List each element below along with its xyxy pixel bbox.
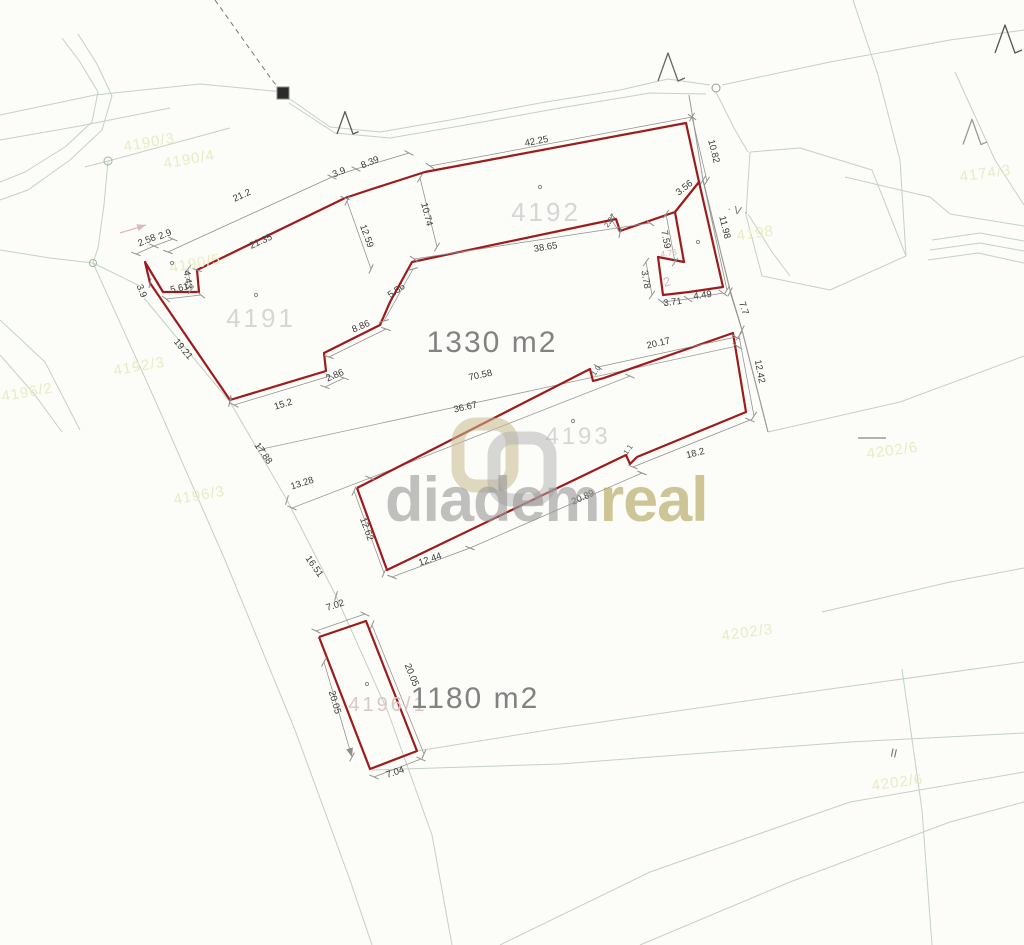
- parcel-number-4192: 4192: [511, 197, 581, 227]
- parcel-boundary-underlay: [716, 92, 748, 152]
- dimension-tick: [381, 327, 390, 330]
- dimension-tick: [286, 495, 289, 505]
- dimension-tick: [704, 177, 709, 185]
- parcel-center-dot: [254, 293, 257, 296]
- parcel-boundary-underlay: [932, 233, 1024, 241]
- double-bar-symbol: II: [889, 746, 898, 761]
- parcel-number-4193: 4193: [545, 423, 610, 450]
- dimension-line: [316, 614, 365, 631]
- watermark-word-real: real: [600, 465, 708, 535]
- boundary-line: [703, 180, 768, 432]
- tree-symbol: [337, 112, 359, 134]
- parcel-boundary-underlay: [930, 243, 1024, 251]
- underlay-parcel-label: 4202/3: [720, 621, 774, 645]
- underlay-parcel-label: 4174/3: [958, 162, 1012, 186]
- dimension-tick: [230, 403, 239, 408]
- dimension-label-faint: 4.76: [660, 247, 678, 259]
- parcel-boundary-underlay: [0, 84, 283, 115]
- dimension-label: 8.39: [359, 154, 380, 171]
- dimension-label: 36.67: [453, 400, 479, 416]
- dimension-label: 21.2: [231, 187, 252, 205]
- parcel-boundary-underlay: [822, 568, 1024, 612]
- tree-symbol: [995, 25, 1022, 53]
- parcel-center-dot: [571, 419, 574, 422]
- orchard-symbol: · V ·: [726, 203, 749, 219]
- dimension-label: 70.58: [468, 368, 494, 384]
- dimension-label: 19.21: [171, 337, 195, 362]
- underlay-parcel-label: 4190/4: [162, 147, 216, 173]
- parcel-boundary-underlay: [0, 250, 93, 263]
- dimension-line: [692, 117, 707, 181]
- dimension-label: 12.42: [752, 359, 767, 384]
- dimension-label: 7.59: [658, 229, 672, 249]
- underlay-parcel-label: 4202/6: [865, 439, 919, 463]
- dimension-label: 16.51: [303, 554, 326, 580]
- underlay-parcel-label: 4192/3: [112, 354, 166, 380]
- dimension-label: 12.59: [357, 223, 375, 249]
- building-point-symbol: [277, 87, 289, 99]
- parcel-number-4191: 4191: [226, 303, 296, 333]
- dimension-tick: [724, 286, 729, 294]
- parcel-boundary-underlay: [853, 0, 906, 256]
- parcel-boundary-underlay: [845, 177, 1024, 226]
- dimension-label: 12.62: [357, 516, 375, 542]
- dimension-label: 42.25: [524, 134, 549, 149]
- parcel-boundary-underlay: [722, 30, 1024, 85]
- dimension-tick: [649, 291, 655, 299]
- dimension-label: 7.7: [736, 300, 751, 316]
- dashed-leader-line: [215, 0, 281, 91]
- parcel-boundary-underlay: [928, 253, 1024, 263]
- area-label-1330: 1330 m2: [427, 326, 558, 359]
- dimension-label: 3.9: [331, 165, 347, 180]
- watermark-logo-text: diademreal: [385, 465, 708, 535]
- dimension-label: 7.04: [385, 765, 406, 781]
- tree-symbol: [658, 53, 685, 81]
- underlay-parcel-label: 4190/5: [168, 251, 222, 277]
- area-label-1180: 1180 m2: [411, 682, 540, 715]
- dimension-label: 8.86: [350, 318, 371, 335]
- tree-symbol: [963, 119, 987, 144]
- dimension-label: 21.35: [248, 232, 274, 252]
- survey-node: [712, 84, 720, 92]
- dimension-tick: [434, 243, 439, 252]
- dimension-tick: [352, 167, 361, 172]
- dimension-tick: [643, 258, 649, 266]
- dimension-label: 2.86: [324, 367, 345, 384]
- dimension-tick: [405, 151, 414, 156]
- parcel-boundary-underlay: [144, 298, 452, 945]
- dimension-tick: [322, 658, 327, 667]
- parcel-boundary-underlay: [640, 802, 1024, 945]
- dimension-line: [414, 223, 650, 259]
- dimension-label: 10.82: [705, 139, 721, 165]
- dimension-tick: [361, 612, 370, 616]
- dimension-label: 3.71: [663, 296, 683, 309]
- dimension-label: 3.9: [134, 283, 149, 299]
- parcel-boundary-underlay: [93, 161, 108, 263]
- dimension-tick: [312, 629, 321, 633]
- dimension-arrowhead: [136, 222, 147, 231]
- dimension-tick: [426, 163, 434, 169]
- dimension-label: 3.56: [674, 178, 695, 198]
- dimension-label: 18.2: [685, 446, 706, 461]
- dimension-label: 15.2: [273, 397, 294, 413]
- parcel-boundary-underlay: [746, 148, 906, 290]
- dimension-label: 13.28: [289, 475, 315, 493]
- watermark-word-diadem: diadem: [385, 465, 600, 535]
- dimension-label: 10.74: [418, 202, 434, 228]
- survey-drawing: 21.221.353.98.3942.2510.823.5611.987.593…: [0, 0, 1024, 945]
- dimension-label: 3.78: [638, 270, 652, 290]
- parcel-boundary-underlay: [287, 79, 710, 132]
- dimension-label: 38.65: [533, 240, 558, 255]
- split-line-70-58: [262, 346, 737, 449]
- dimension-label-tiny: 1.1: [621, 443, 634, 457]
- dimension-tick: [751, 412, 757, 420]
- underlay-parcel-label: 4190/3: [122, 130, 176, 156]
- underlay-parcel-label: 4198: [736, 223, 775, 245]
- cadastral-map-canvas: 21.221.353.98.3942.2510.823.5611.987.593…: [0, 0, 1024, 945]
- dimension-tick: [324, 355, 333, 358]
- parcel-boundary-underlay: [768, 356, 1024, 432]
- parcel-center-dot: [365, 682, 368, 685]
- parcel-center-dot: [538, 185, 541, 188]
- dimension-label: 5.61: [169, 281, 189, 296]
- parcel-boundary-underlay: [902, 669, 932, 945]
- underlay-parcel-label: 4196/3: [172, 483, 226, 509]
- dimension-label: 20.17: [646, 336, 672, 352]
- dimension-label: 17.88: [252, 441, 275, 467]
- parcel-boundary-underlay: [93, 263, 140, 286]
- parcel-boundary-underlay: [0, 320, 80, 430]
- dimension-label: 11.98: [716, 215, 732, 240]
- underlay-parcel-label: 4196/2: [0, 380, 54, 406]
- parcel-center-dot: [696, 240, 699, 243]
- parcel-boundary-underlay: [0, 38, 98, 182]
- dimension-label: 4.49: [693, 289, 713, 302]
- parcel-outline-main: [145, 123, 699, 400]
- parcel-boundary-underlay: [500, 772, 1024, 945]
- parcel-boundary-underlay: [372, 733, 1024, 770]
